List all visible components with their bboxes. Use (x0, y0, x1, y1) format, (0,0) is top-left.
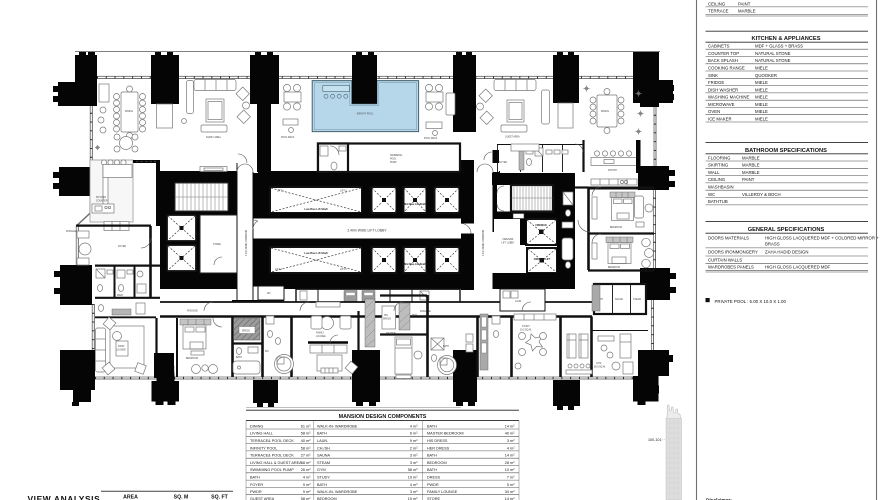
svg-text:CH./SH.: CH./SH. (317, 446, 331, 450)
svg-text:27 m²: 27 m² (301, 454, 311, 458)
svg-text:KITCHEN: KITCHEN (96, 197, 106, 199)
svg-text:7 m²: 7 m² (507, 476, 515, 480)
svg-text:HIGH GLOSS LACQUERED MDF: HIGH GLOSS LACQUERED MDF (765, 264, 831, 269)
svg-text:10 m²: 10 m² (505, 468, 515, 472)
svg-text:BATH: BATH (317, 432, 327, 436)
svg-text:34 m²: 34 m² (505, 490, 515, 494)
svg-text:SAUNA: SAUNA (317, 454, 331, 458)
svg-text:VIEW ANALYSIS: VIEW ANALYSIS (28, 494, 101, 500)
svg-text:MARBLE: MARBLE (742, 170, 760, 175)
svg-text:3.00m WIDE CORRIDOR: 3.00m WIDE CORRIDOR (483, 229, 485, 256)
svg-text:40 m²: 40 m² (505, 432, 515, 436)
svg-text:BATH: BATH (236, 356, 242, 359)
svg-text:Mid Rise Lift Shaft: Mid Rise Lift Shaft (404, 263, 426, 266)
svg-text:FOYER: FOYER (499, 162, 507, 164)
svg-text:26 m²: 26 m² (301, 468, 311, 472)
svg-text:FOYER: FOYER (118, 246, 126, 248)
svg-text:BEDROOM: BEDROOM (608, 267, 620, 269)
svg-text:Low Rise Lift Shaft: Low Rise Lift Shaft (304, 251, 327, 255)
svg-text:BATH: BATH (427, 424, 437, 428)
svg-text:GENERAL SPECIFICATIONS: GENERAL SPECIFICATIONS (748, 227, 825, 233)
svg-text:MARBLE: MARBLE (738, 9, 756, 14)
svg-text:SKIRTING: SKIRTING (708, 163, 729, 168)
svg-text:MAID: MAID (117, 294, 123, 297)
svg-text:FOYER: FOYER (250, 483, 263, 487)
svg-text:QUOOKER: QUOOKER (755, 73, 777, 78)
svg-text:SAUNA: SAUNA (615, 298, 623, 301)
svg-text:PASSAGE: PASSAGE (66, 230, 77, 233)
svg-text:HIS: HIS (384, 315, 388, 317)
svg-text:PAINT: PAINT (738, 1, 751, 6)
svg-text:MARBLE: MARBLE (742, 155, 760, 160)
svg-text:CEILING: CEILING (708, 177, 726, 182)
svg-text:WC: WC (708, 192, 715, 197)
svg-text:AREA: AREA (123, 495, 138, 500)
svg-text:DOORS IRONMONGERY: DOORS IRONMONGERY (708, 250, 758, 255)
svg-text:TERRACE& POOL DECK: TERRACE& POOL DECK (250, 454, 294, 458)
svg-text:WARDROBES PANELS: WARDROBES PANELS (708, 264, 754, 269)
svg-text:MARBLE: MARBLE (742, 163, 760, 168)
svg-text:FIREMAN LIFT: FIREMAN LIFT (534, 258, 551, 261)
svg-text:3 m²: 3 m² (410, 461, 418, 465)
svg-text:CEILING: CEILING (708, 1, 726, 6)
svg-text:FIREMAN: FIREMAN (536, 224, 547, 227)
svg-text:LIFT-1: LIFT-1 (277, 191, 284, 193)
svg-text:3 m²: 3 m² (410, 454, 418, 458)
svg-text:INFINITY POOL: INFINITY POOL (357, 114, 374, 116)
svg-text:FIRST: FIRST (118, 346, 125, 348)
svg-text:VILLEROY & BOCH: VILLEROY & BOCH (742, 192, 781, 197)
svg-text:9 m²: 9 m² (410, 439, 418, 443)
svg-text:LAUN.: LAUN. (515, 300, 522, 303)
svg-text:14 m²: 14 m² (505, 424, 515, 428)
svg-text:58 m²: 58 m² (408, 468, 418, 472)
svg-text:DRESS: DRESS (427, 476, 441, 480)
svg-text:5 m²: 5 m² (507, 483, 515, 487)
svg-text:DOORS MATERIALS: DOORS MATERIALS (708, 236, 749, 241)
svg-text:STEAM: STEAM (317, 461, 330, 465)
svg-text:4 m²: 4 m² (303, 476, 311, 480)
svg-text:BATHROOM SPECIFICATIONS: BATHROOM SPECIFICATIONS (745, 148, 827, 154)
svg-text:WASHING MACHINE: WASHING MACHINE (708, 95, 750, 100)
svg-text:STORE: STORE (213, 244, 221, 246)
svg-text:BATH: BATH (427, 468, 437, 472)
svg-text:WALK-IN- WARDROBE: WALK-IN- WARDROBE (317, 424, 358, 428)
svg-text:BATH: BATH (250, 476, 260, 480)
svg-text:58 m²: 58 m² (301, 461, 311, 465)
svg-text:Low Rise Lift Shaft: Low Rise Lift Shaft (304, 207, 327, 211)
svg-text:NATURAL STONE: NATURAL STONE (755, 58, 791, 63)
svg-text:WC: WC (267, 293, 271, 295)
svg-text:DINING: DINING (125, 111, 133, 113)
svg-text:MANSION DESIGN COMPONENTS: MANSION DESIGN COMPONENTS (339, 414, 427, 420)
svg-text:FAMILY: FAMILY (316, 332, 324, 335)
svg-text:PRIVATE POOL : 5.00 X 10.0 X: PRIVATE POOL : 5.00 X 10.0 X 1.00 (715, 299, 787, 304)
svg-text:19.0 SQ.M.: 19.0 SQ.M. (520, 330, 532, 332)
svg-text:DINING: DINING (250, 424, 263, 428)
svg-text:POOL DECK: POOL DECK (424, 138, 438, 140)
svg-text:SQ. FT: SQ. FT (211, 495, 229, 500)
svg-text:STUDY: STUDY (317, 476, 330, 480)
svg-text:3.00m WIDE CORRIDOR: 3.00m WIDE CORRIDOR (246, 229, 248, 256)
svg-text:FLOORING: FLOORING (708, 155, 731, 160)
svg-text:ZAHA HADID DESIGN: ZAHA HADID DESIGN (765, 250, 808, 255)
svg-text:LIFT LOBBY: LIFT LOBBY (502, 243, 515, 245)
svg-text:61 m²: 61 m² (301, 424, 311, 428)
svg-text:MIELE: MIELE (755, 87, 768, 92)
svg-text:SQ. M: SQ. M (174, 495, 189, 500)
svg-text:GUEST AREA: GUEST AREA (505, 136, 520, 139)
svg-text:BEDROOM: BEDROOM (186, 358, 198, 360)
svg-text:100-101: 100-101 (648, 438, 662, 442)
svg-text:LIVING HALL & GUEST AREA: LIVING HALL & GUEST AREA (250, 461, 302, 465)
svg-text:DRESS: DRESS (242, 331, 250, 333)
svg-text:6 m²: 6 m² (410, 432, 418, 436)
svg-text:SWIMMING POOL PUMP: SWIMMING POOL PUMP (250, 468, 294, 472)
svg-text:FRIDGE: FRIDGE (708, 80, 724, 85)
svg-text:GYM: GYM (317, 468, 326, 472)
svg-text:3 m²: 3 m² (410, 490, 418, 494)
svg-text:STEAM: STEAM (633, 298, 641, 301)
svg-text:PASSAGE: PASSAGE (420, 310, 431, 313)
svg-text:2 m²: 2 m² (410, 446, 418, 450)
svg-text:KITCHEN & APPLIANCES: KITCHEN & APPLIANCES (752, 36, 821, 42)
svg-text:DISH WASHER: DISH WASHER (708, 87, 738, 92)
svg-text:BEDROOM: BEDROOM (427, 461, 447, 465)
svg-text:MIELE: MIELE (755, 95, 768, 100)
svg-text:Mid Rise Lift Shaft: Mid Rise Lift Shaft (404, 203, 426, 206)
svg-text:DRESS: DRESS (383, 319, 391, 321)
svg-text:40 m²: 40 m² (301, 439, 311, 443)
svg-text:BATH: BATH (317, 483, 327, 487)
svg-text:PASSAGE: PASSAGE (187, 310, 198, 313)
svg-text:INFINITY POOL: INFINITY POOL (250, 446, 277, 450)
svg-text:BATH: BATH (443, 345, 449, 348)
svg-text:58 m²: 58 m² (301, 446, 311, 450)
svg-text:DINING: DINING (601, 111, 609, 113)
svg-text:LIFT-5: LIFT-5 (340, 269, 347, 271)
svg-text:LOUNGE: LOUNGE (116, 350, 126, 352)
svg-text:COOKING RANGE: COOKING RANGE (708, 66, 745, 71)
svg-text:2.40m WIDE LIFT LOBBY: 2.40m WIDE LIFT LOBBY (347, 229, 387, 233)
svg-text:TERRACE& POOL DECK: TERRACE& POOL DECK (250, 439, 294, 443)
svg-text:CURTAIN WALLS: CURTAIN WALLS (708, 257, 742, 262)
svg-text:PUMP: PUMP (390, 162, 397, 164)
svg-text:COUNTER TOP: COUNTER TOP (708, 51, 739, 56)
svg-text:4 m²: 4 m² (410, 424, 418, 428)
svg-text:9 m²: 9 m² (303, 490, 311, 494)
svg-text:BATH: BATH (427, 454, 437, 458)
svg-text:9 m²: 9 m² (303, 483, 311, 487)
svg-text:MIELE: MIELE (755, 116, 768, 121)
svg-text:STUDY: STUDY (522, 326, 530, 328)
svg-text:OVEN: OVEN (708, 109, 720, 114)
svg-text:SWIMMING: SWIMMING (390, 155, 402, 157)
svg-text:PAINT: PAINT (742, 177, 755, 182)
svg-text:GYM: GYM (596, 363, 601, 365)
svg-text:58 m²: 58 m² (301, 432, 311, 436)
svg-text:LAUN.: LAUN. (317, 439, 328, 443)
svg-text:COUNTER: COUNTER (96, 201, 108, 203)
svg-text:14 m²: 14 m² (505, 454, 515, 458)
svg-text:PANTRY: PANTRY (608, 169, 618, 172)
svg-text:BACK SPLASH: BACK SPLASH (708, 58, 738, 63)
svg-text:LIVING HALL: LIVING HALL (250, 432, 273, 436)
svg-text:NATURAL STONE: NATURAL STONE (755, 51, 791, 56)
svg-text:LOUNGE: LOUNGE (316, 336, 326, 338)
svg-text:MIELE: MIELE (755, 80, 768, 85)
svg-text:HER: HER (412, 315, 417, 317)
svg-text:PWDR: PWDR (250, 490, 262, 494)
svg-text:MIELE: MIELE (755, 102, 768, 107)
svg-text:HER DRESS: HER DRESS (427, 446, 450, 450)
svg-text:19 m²: 19 m² (408, 476, 418, 480)
svg-text:BEDROOM: BEDROOM (610, 227, 622, 229)
svg-text:BRASS: BRASS (765, 242, 780, 247)
svg-text:FAMILY AREA: FAMILY AREA (206, 136, 221, 139)
svg-text:4 m²: 4 m² (507, 446, 515, 450)
svg-text:MIELE: MIELE (755, 109, 768, 114)
svg-text:LIFT-4: LIFT-4 (275, 269, 282, 271)
svg-text:TERRACE: TERRACE (708, 9, 729, 14)
svg-text:28 m²: 28 m² (505, 461, 515, 465)
svg-text:LIFT-2: LIFT-2 (340, 191, 347, 193)
svg-text:HIS DRESS: HIS DRESS (427, 439, 448, 443)
svg-text:WALK-IN- WARDROBE: WALK-IN- WARDROBE (317, 490, 358, 494)
svg-text:MIELE: MIELE (755, 66, 768, 71)
svg-text:58.0 SQ.M.: 58.0 SQ.M. (594, 367, 606, 369)
svg-text:SINK: SINK (708, 73, 718, 78)
svg-text:HIGH GLOSS LACQUERED MDF + COL: HIGH GLOSS LACQUERED MDF + COLORED MIRRO… (765, 236, 879, 241)
svg-text:CABINETS: CABINETS (708, 44, 730, 49)
svg-text:FIRE/SMK: FIRE/SMK (503, 239, 514, 241)
svg-text:BATHTUB: BATHTUB (708, 199, 728, 204)
svg-text:FAMILY LOUNGE: FAMILY LOUNGE (427, 490, 458, 494)
svg-text:PWDR: PWDR (427, 483, 439, 487)
svg-text:ICE MAKER: ICE MAKER (708, 116, 732, 121)
svg-text:WASHBASIN: WASHBASIN (708, 185, 734, 190)
svg-text:WALL: WALL (708, 170, 720, 175)
svg-text:3 m²: 3 m² (507, 439, 515, 443)
svg-text:MICROWAVE: MICROWAVE (708, 102, 735, 107)
svg-text:WC: WC (265, 351, 269, 353)
svg-text:MDF + GLASS + BRASS: MDF + GLASS + BRASS (755, 44, 803, 49)
svg-text:MASTER: MASTER (386, 332, 396, 335)
svg-text:POOL: POOL (390, 159, 397, 161)
svg-text:MASTER BEDROOM: MASTER BEDROOM (427, 432, 464, 436)
svg-text:4 m²: 4 m² (410, 483, 418, 487)
svg-text:POOL DECK: POOL DECK (281, 137, 295, 139)
